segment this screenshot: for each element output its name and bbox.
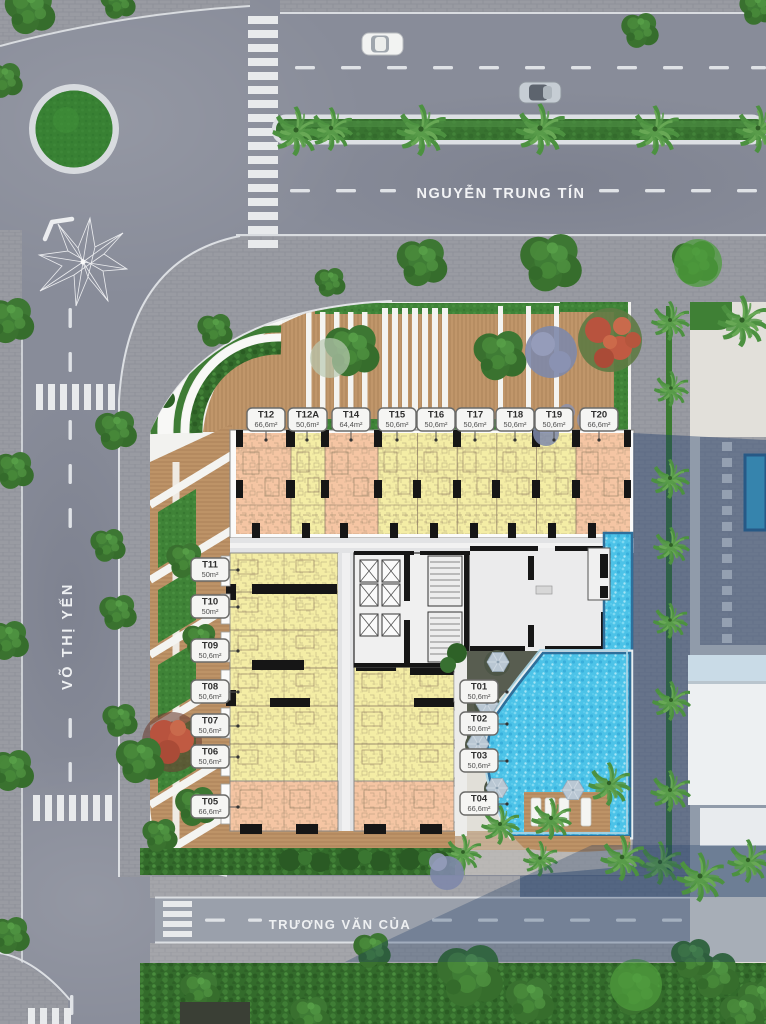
svg-text:T15: T15	[389, 410, 406, 421]
svg-text:T10: T10	[202, 597, 218, 608]
svg-text:TRƯƠNG VĂN CỦA: TRƯƠNG VĂN CỦA	[269, 917, 412, 932]
svg-text:T17: T17	[467, 410, 483, 421]
svg-text:50m²: 50m²	[202, 607, 219, 616]
svg-text:50,6m²: 50,6m²	[503, 420, 527, 429]
svg-text:T20: T20	[591, 410, 607, 421]
svg-text:50,6m²: 50,6m²	[542, 420, 566, 429]
svg-text:T01: T01	[471, 682, 488, 693]
svg-text:64,4m²: 64,4m²	[339, 420, 363, 429]
svg-text:T08: T08	[202, 682, 218, 693]
svg-text:VÕ THỊ YẾN: VÕ THỊ YẾN	[58, 582, 76, 690]
svg-text:T18: T18	[507, 410, 523, 421]
svg-text:T14: T14	[343, 410, 360, 421]
svg-text:T16: T16	[428, 410, 444, 421]
svg-text:T03: T03	[471, 751, 487, 762]
svg-text:66,6m²: 66,6m²	[467, 804, 491, 813]
svg-text:T11: T11	[202, 560, 219, 571]
svg-text:T09: T09	[202, 641, 218, 652]
svg-text:66,6m²: 66,6m²	[587, 420, 611, 429]
svg-text:T06: T06	[202, 747, 218, 758]
svg-text:T07: T07	[202, 716, 218, 727]
svg-text:T02: T02	[471, 714, 487, 725]
svg-text:50,6m²: 50,6m²	[198, 757, 222, 766]
svg-text:50,6m²: 50,6m²	[198, 726, 222, 735]
svg-text:50,6m²: 50,6m²	[385, 420, 409, 429]
svg-text:50,6m²: 50,6m²	[463, 420, 487, 429]
svg-text:50,6m²: 50,6m²	[198, 692, 222, 701]
svg-text:50m²: 50m²	[202, 570, 219, 579]
svg-text:50,6m²: 50,6m²	[296, 420, 320, 429]
svg-text:50,6m²: 50,6m²	[467, 724, 491, 733]
svg-text:66,6m²: 66,6m²	[254, 420, 278, 429]
svg-text:50,6m²: 50,6m²	[467, 761, 491, 770]
svg-text:50,6m²: 50,6m²	[198, 651, 222, 660]
svg-text:T12: T12	[258, 410, 274, 421]
svg-text:T19: T19	[546, 410, 562, 421]
svg-text:T05: T05	[202, 797, 219, 808]
svg-text:T04: T04	[471, 794, 488, 805]
svg-text:NGUYỄN TRUNG TÍN: NGUYỄN TRUNG TÍN	[417, 185, 586, 202]
svg-text:66,6m²: 66,6m²	[198, 807, 222, 816]
svg-text:T12A: T12A	[296, 410, 319, 421]
svg-text:50,6m²: 50,6m²	[467, 692, 491, 701]
svg-text:50,6m²: 50,6m²	[424, 420, 448, 429]
